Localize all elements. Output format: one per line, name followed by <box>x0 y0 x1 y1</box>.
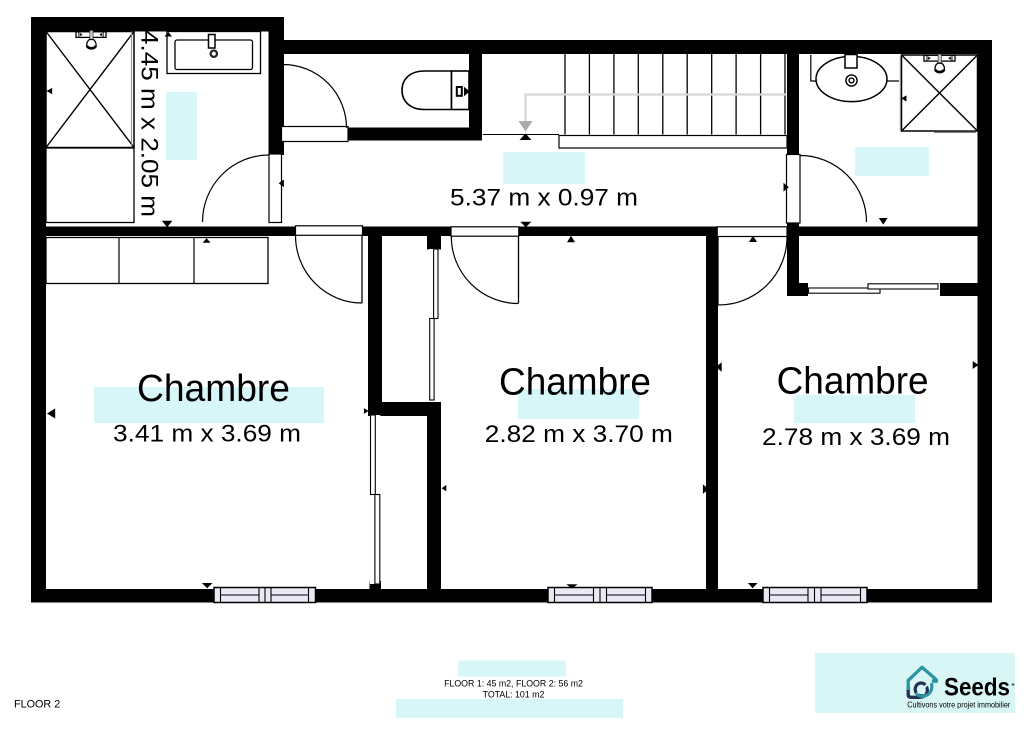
svg-text:2.78 m x 3.69 m: 2.78 m x 3.69 m <box>762 424 950 451</box>
svg-text:Seeds: Seeds <box>944 674 1010 702</box>
svg-text:Chambre: Chambre <box>499 362 651 404</box>
svg-text:4.45 m x 2.05 m: 4.45 m x 2.05 m <box>136 30 163 217</box>
svg-text:5.37 m x 0.97 m: 5.37 m x 0.97 m <box>450 185 638 212</box>
svg-text:3.41 m x 3.69 m: 3.41 m x 3.69 m <box>113 421 301 448</box>
svg-text:FLOOR 2: FLOOR 2 <box>14 699 60 711</box>
svg-text:Cultivons votre projet immobil: Cultivons votre projet immobilier <box>907 701 1010 710</box>
svg-text:TOTAL: 101 m2: TOTAL: 101 m2 <box>483 690 545 700</box>
svg-text:Chambre: Chambre <box>777 361 929 403</box>
svg-text:Chambre: Chambre <box>137 368 290 410</box>
svg-text:2.82 m x 3.70 m: 2.82 m x 3.70 m <box>485 421 673 448</box>
svg-text:FLOOR 1: 45 m2, FLOOR 2: 56 m2: FLOOR 1: 45 m2, FLOOR 2: 56 m2 <box>444 679 583 689</box>
